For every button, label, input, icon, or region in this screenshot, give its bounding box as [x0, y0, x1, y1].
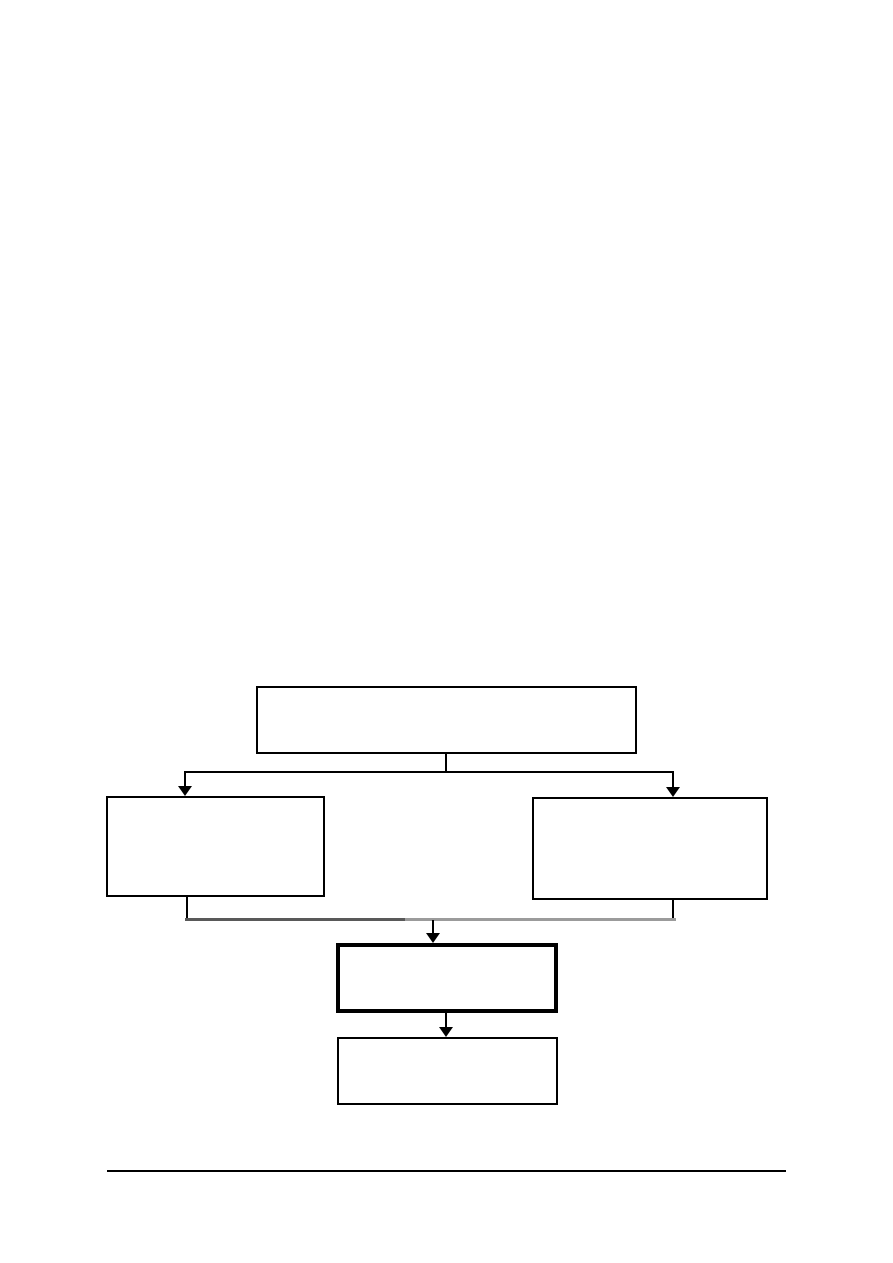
document-page — [0, 0, 893, 1263]
flowchart-bottom-box — [337, 1037, 558, 1105]
emphasis-arrowhead-icon — [439, 1027, 453, 1037]
connector-merge-bar-right — [405, 918, 676, 921]
connector-top-stem — [445, 753, 447, 773]
merge-arrowhead-icon — [426, 933, 440, 943]
connector-left-stub — [186, 896, 188, 920]
flowchart-emphasis-box — [336, 943, 558, 1013]
footer-rule — [107, 1170, 786, 1172]
right-branch-arrowhead-icon — [666, 787, 680, 797]
connector-branch-bar — [184, 771, 674, 773]
flowchart-left-box — [106, 796, 325, 897]
flowchart-top-box — [256, 686, 637, 754]
connector-merge-bar-left — [185, 918, 405, 921]
left-branch-arrowhead-icon — [178, 786, 192, 796]
flowchart-right-box — [532, 797, 768, 900]
